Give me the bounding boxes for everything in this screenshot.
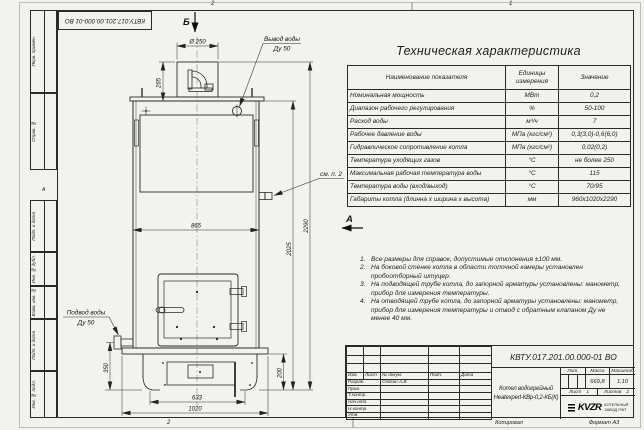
note-number: 1. [358,256,371,264]
spec-col-name: Наименование показателя [348,66,506,90]
margin-box-inv-podl: Инв. № подл. [30,371,57,418]
spec-cell-unit: % [506,103,559,116]
spec-cell-value: 115 [559,168,631,181]
sheet-label: Лист [569,390,581,395]
note-item: 3.На подводящей трубе котла, до запорной… [358,281,626,298]
format-label: Формат А3 [573,420,635,426]
spec-cell-unit: м³/ч [506,116,559,129]
scale-value: 1:10 [610,375,635,389]
company-cell: KVZR КОТЕЛЬНЫЙ ЗАВОД РЭП [561,396,635,419]
spec-cell-unit: мм [506,194,559,207]
spec-row: Температура уходящих газов°Сне более 250 [348,155,631,168]
zone-marker-top-left: 2 [211,1,214,7]
note-item: 4.На отводящей трубе котла, до запорной … [358,298,626,323]
spec-cell-name: Температура уходящих газов [348,155,506,168]
role-row: Т.контр. [347,392,492,399]
spec-row: Габариты котла (длинна х ширина х высота… [348,194,631,207]
margin-box-vzam-inv: Взам. инв. № [30,286,57,319]
lit-label: Лит. [561,368,586,375]
note-number: 3. [358,281,371,298]
spec-row: Рабочее давление водыМПа (кгс/см²)0,3(3,… [348,129,631,142]
change-row [347,347,492,356]
spec-row: Температура воды (вход/выход)°С70/95 [348,181,631,194]
sheets-value: 2 [626,390,629,395]
role-row: Разраб.Седгин А.В. [347,379,492,386]
spec-cell-value: не более 250 [559,155,631,168]
note-text: На подводящей трубе котла, до запорной а… [371,281,626,298]
spec-row: Номинальная мощностьМВт0,2 [348,90,631,103]
note-text: На отводящей трубе котла, до запорной ар… [371,298,626,323]
spec-cell-value: 0,3(3,0)-0,6(6,0) [559,129,631,142]
spec-cell-name: Диапазон рабочего регулирования [348,103,506,116]
spec-cell-value: 0,02(0,2) [559,142,631,155]
spec-row: Максимальная рабочая температура воды°С1… [348,168,631,181]
company-name: КОТЕЛЬНЫЙ ЗАВОД РЭП [604,403,628,412]
notes-list: 1.Все размеры для справок, допустимые от… [358,256,626,324]
spec-cell-name: Расход воды [348,116,506,129]
role-row: Н.контр. [347,406,492,413]
scale-label: Масштаб [610,368,635,375]
title-block-change-grid: Изм. Лист № докум. Подп. Дата Разраб.Сед… [346,346,492,420]
kvzr-logo-icon [568,404,575,412]
spec-row: Гидравлическое сопротивление котлаМПа (к… [348,142,631,155]
note-number: 2. [358,264,371,281]
spec-cell-name: Максимальная рабочая температура воды [348,168,506,181]
margin-box-podp-data-1: Подп. и дата [30,200,57,252]
margin-box-podp-data-2: Подп. и дата [30,319,57,371]
role-name: Седгин А.В. [381,379,429,386]
spec-cell-unit: МПа (кгс/см²) [506,129,559,142]
note-text: На боковой стенке котла в области топочн… [371,264,626,281]
spec-cell-name: Номинальная мощность [348,90,506,103]
spec-cell-value: 50-100 [559,103,631,116]
kvzr-logo-text: KVZR [578,402,601,413]
spec-cell-name: Габариты котла (длинна х ширина х высота… [348,194,506,207]
margin-box-perv-primen: Перв. примен. [30,10,57,93]
spec-cell-unit: °С [506,181,559,194]
spec-cell-value: 7 [559,116,631,129]
spec-header-row: Наименование показателя Единицы измерени… [348,66,631,90]
title-block-right: Лит. Масса Масштаб 669,8 1:10 Лист 1 Лис… [561,368,635,419]
role-row: Нач.отд. [347,399,492,406]
spec-cell-name: Гидравлическое сопротивление котла [348,142,506,155]
margin-box-sprav-no: Справ. № [30,93,57,170]
spec-row: Диапазон рабочего регулирования%50-100 [348,103,631,116]
spec-cell-unit: °С [506,155,559,168]
spec-col-units: Единицы измерения [506,66,559,90]
sheet-value: 1 [586,390,589,395]
product-name: Котел водогрейный Heatexpert-КВр-0,2-КБ(… [491,368,561,419]
change-row [347,364,492,373]
zone-marker-top-right: 1 [509,1,512,7]
change-row [347,355,492,364]
spec-table-title: Техническая характеристика [347,44,630,58]
spec-cell-value: 960х1020х2290 [559,194,631,207]
spec-cell-unit: МПа (кгс/см²) [506,142,559,155]
role-row: Пров. [347,386,492,393]
spec-cell-value: 70/95 [559,181,631,194]
spec-table: Наименование показателя Единицы измерени… [347,65,631,207]
change-header-row: Изм. Лист № докум. Подп. Дата [347,372,492,379]
sheets-label: Листов [604,390,621,395]
zone-marker-bottom: 2 [167,420,170,426]
margin-box-inv-dubl: Инв. № дубл. [30,252,57,286]
spec-cell-value: 0,2 [559,90,631,103]
spec-cell-name: Рабочее давление воды [348,129,506,142]
copied-label: Копировал [478,420,540,426]
drawing-sheet: Б А Вывод воды Ду 50 Подвод воды Ду 50 с… [0,0,644,430]
role-row: Утв. [347,412,492,419]
note-number: 4. [358,298,371,323]
title-block: Изм. Лист № докум. Подп. Дата Разраб.Сед… [345,345,634,418]
mass-label: Масса [586,368,610,375]
zone-marker-left: А [42,187,45,193]
spec-cell-name: Температура воды (вход/выход) [348,181,506,194]
note-item: 2.На боковой стенке котла в области топо… [358,264,626,281]
mass-value: 669,8 [586,375,610,389]
doc-number: КВТУ.017.201.00.000-01 ВО [491,346,635,368]
spec-cell-unit: °С [506,168,559,181]
rotated-doc-number-stamp: КВТУ.017.201.00.000-01 ВО [58,11,152,30]
spec-cell-unit: МВт [506,90,559,103]
spec-col-value: Значение [559,66,631,90]
spec-row: Расход водым³/ч7 [348,116,631,129]
